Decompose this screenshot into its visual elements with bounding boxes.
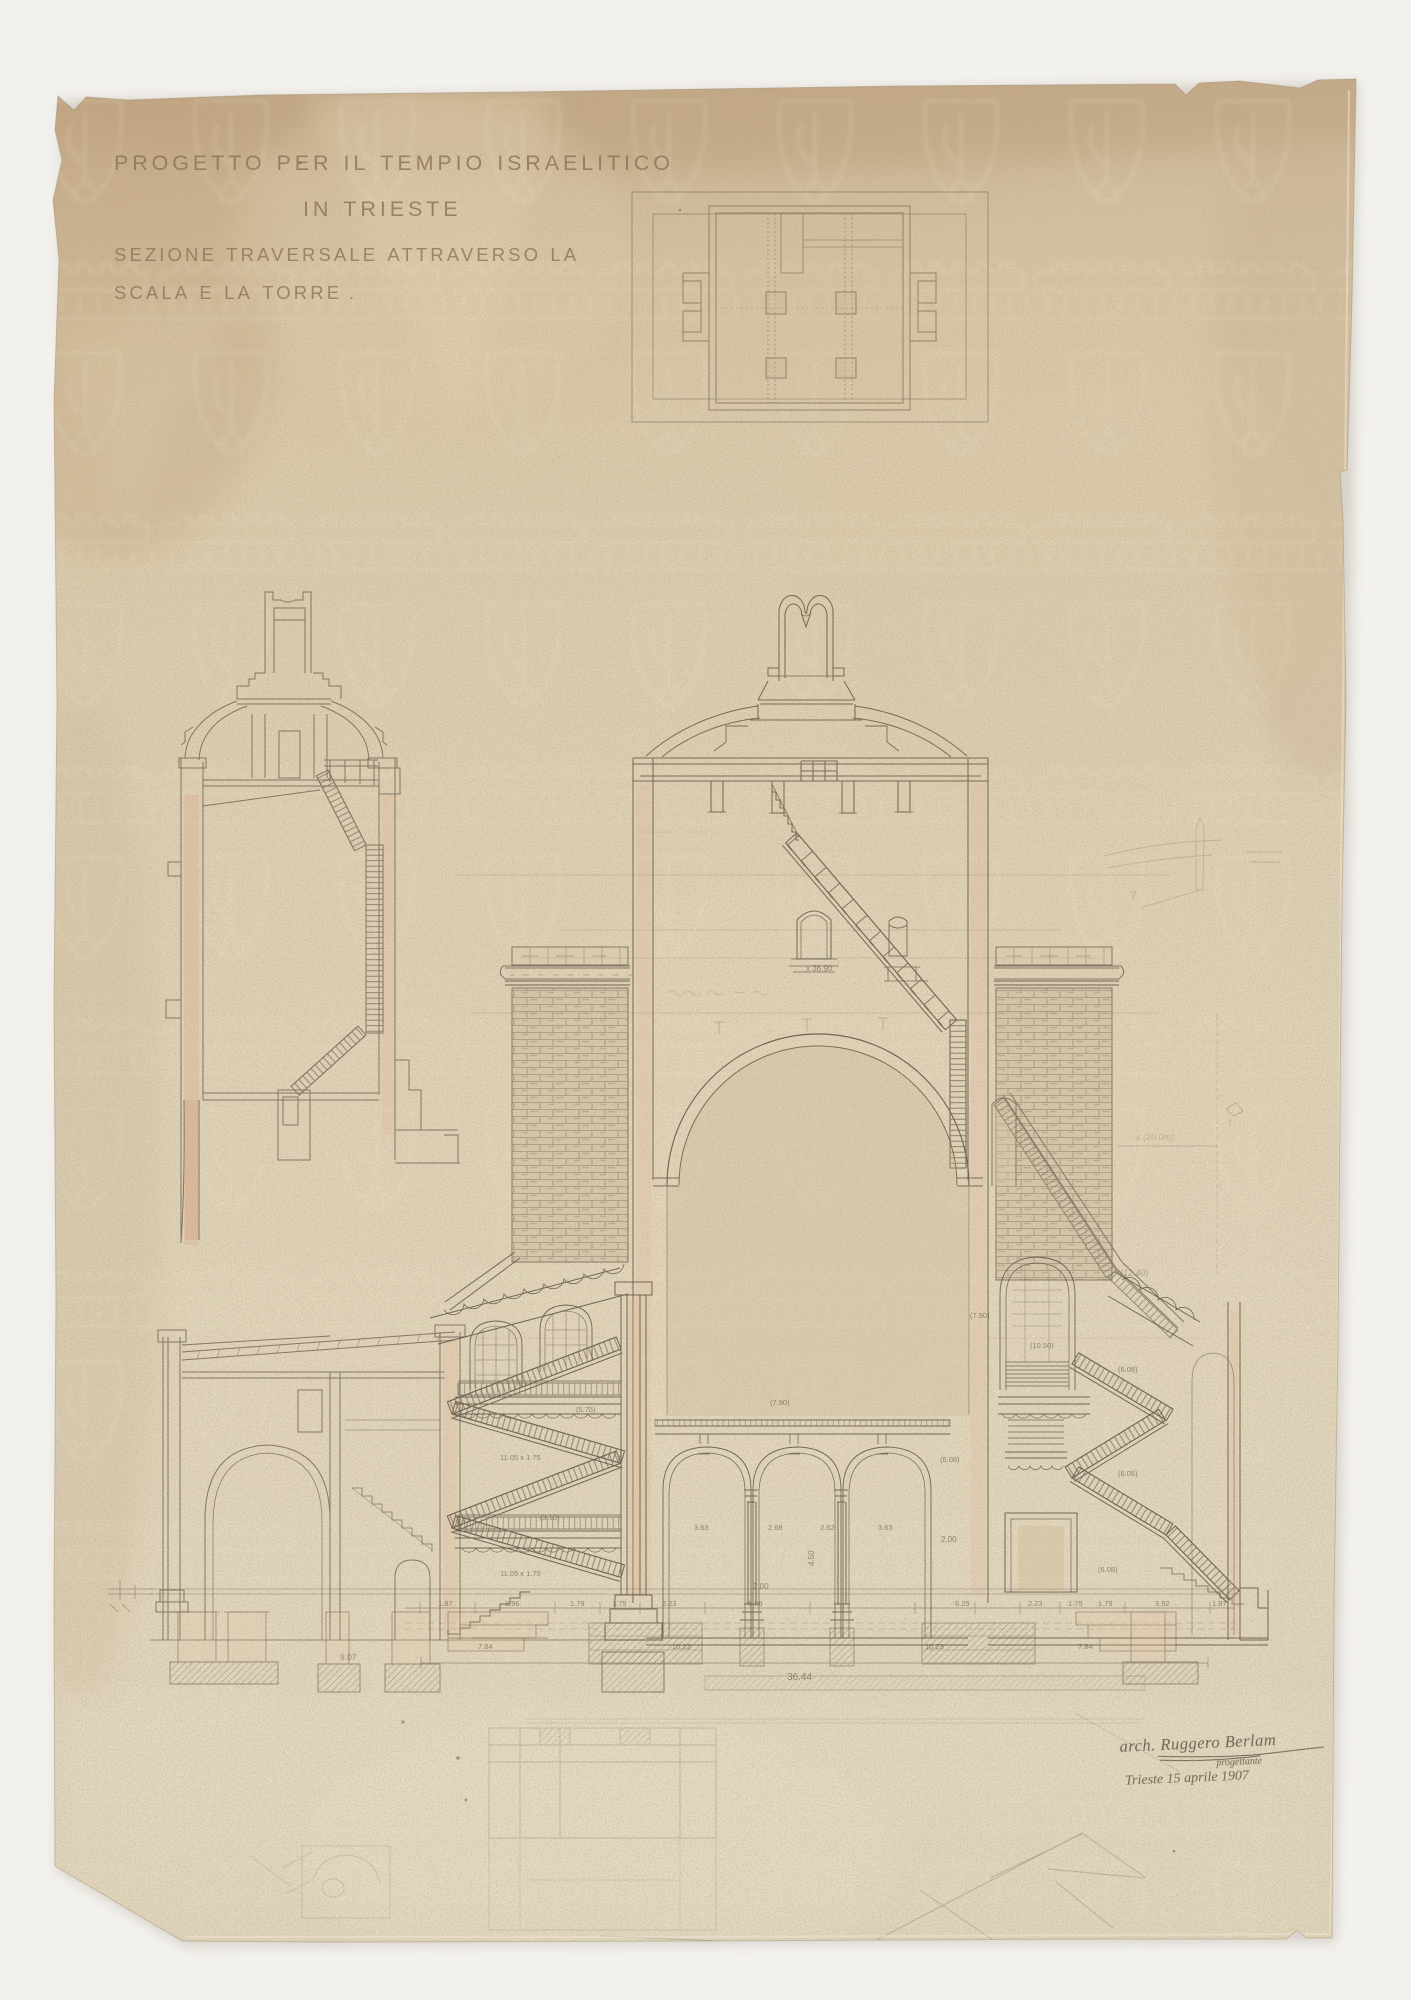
svg-text:9.07: 9.07 — [340, 1652, 357, 1662]
svg-text:progettante: progettante — [1215, 1756, 1263, 1769]
svg-text:x (20.0m): x (20.0m) — [1135, 1132, 1174, 1142]
svg-text:(6.08): (6.08) — [940, 1455, 960, 1464]
svg-text:10.23: 10.23 — [672, 1642, 691, 1651]
svg-text:2.00: 2.00 — [753, 1582, 769, 1591]
svg-text:(10.50): (10.50) — [1030, 1341, 1054, 1350]
svg-text:4.50: 4.50 — [807, 1550, 816, 1566]
svg-text:7.84: 7.84 — [478, 1642, 493, 1651]
svg-text:(12.40): (12.40) — [1120, 1268, 1149, 1278]
svg-text:1.75: 1.75 — [1068, 1599, 1083, 1608]
svg-text:1.87: 1.87 — [438, 1599, 453, 1608]
svg-text:IN TRIESTE: IN TRIESTE — [303, 197, 461, 221]
svg-text:(3.10): (3.10) — [540, 1513, 560, 1522]
svg-text:6.25: 6.25 — [955, 1599, 970, 1608]
svg-text:11.05 x 1.75: 11.05 x 1.75 — [500, 1453, 541, 1462]
svg-text:SEZIONE TRAVERSALE ATTRAVERSO: SEZIONE TRAVERSALE ATTRAVERSO LA — [114, 244, 579, 265]
svg-text:(5.75): (5.75) — [576, 1405, 596, 1414]
svg-text:(7.90): (7.90) — [770, 1398, 790, 1407]
svg-text:3.92: 3.92 — [1155, 1599, 1170, 1608]
svg-text:(6.08): (6.08) — [1118, 1365, 1138, 1374]
svg-text:1.79: 1.79 — [570, 1599, 585, 1608]
svg-text:1.79: 1.79 — [1098, 1599, 1113, 1608]
svg-text:36.44: 36.44 — [787, 1672, 812, 1683]
svg-text:3.63: 3.63 — [694, 1523, 709, 1532]
svg-text:2.23: 2.23 — [662, 1599, 677, 1608]
svg-text:SCALA E LA TORRE .: SCALA E LA TORRE . — [114, 282, 357, 303]
svg-text:2.62: 2.62 — [820, 1523, 835, 1532]
svg-text:1.75: 1.75 — [612, 1599, 627, 1608]
svg-text:7.84: 7.84 — [1078, 1642, 1093, 1651]
svg-text:2.00: 2.00 — [941, 1535, 957, 1544]
svg-text:(7.90): (7.90) — [970, 1311, 990, 1320]
svg-text:7: 7 — [1130, 889, 1137, 903]
svg-text:(6.08): (6.08) — [1098, 1565, 1118, 1574]
svg-text:6.25: 6.25 — [748, 1599, 763, 1608]
svg-text:PROGETTO PER IL TEMPIO ISRAELI: PROGETTO PER IL TEMPIO ISRAELITICO — [114, 151, 674, 175]
svg-text:10.23: 10.23 — [925, 1642, 944, 1651]
svg-text:2.23: 2.23 — [1028, 1599, 1043, 1608]
svg-text:11.05 x 1.75: 11.05 x 1.75 — [500, 1569, 541, 1578]
svg-text:2.68: 2.68 — [768, 1523, 783, 1532]
svg-text:1.87: 1.87 — [1212, 1599, 1227, 1608]
svg-text:(6.08): (6.08) — [1118, 1469, 1138, 1478]
svg-text:3.96: 3.96 — [505, 1599, 520, 1608]
svg-text:x 36.90: x 36.90 — [806, 964, 833, 973]
svg-text:3.63: 3.63 — [878, 1523, 893, 1532]
